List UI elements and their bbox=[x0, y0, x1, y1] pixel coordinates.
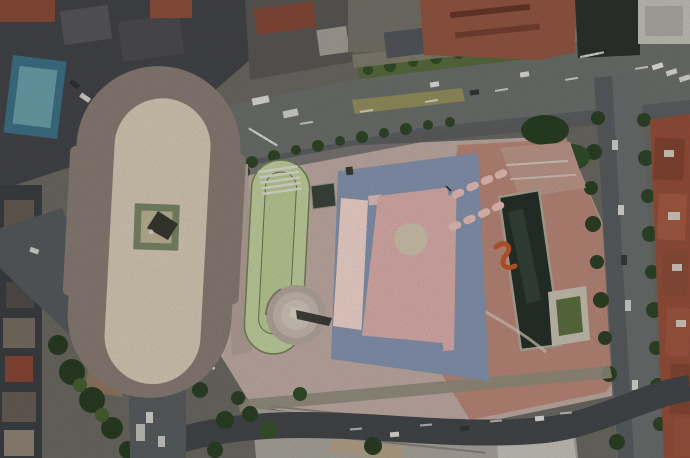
photo-grain bbox=[0, 0, 690, 458]
map-canvas[interactable] bbox=[0, 0, 690, 458]
satellite-screenshot bbox=[0, 0, 690, 458]
